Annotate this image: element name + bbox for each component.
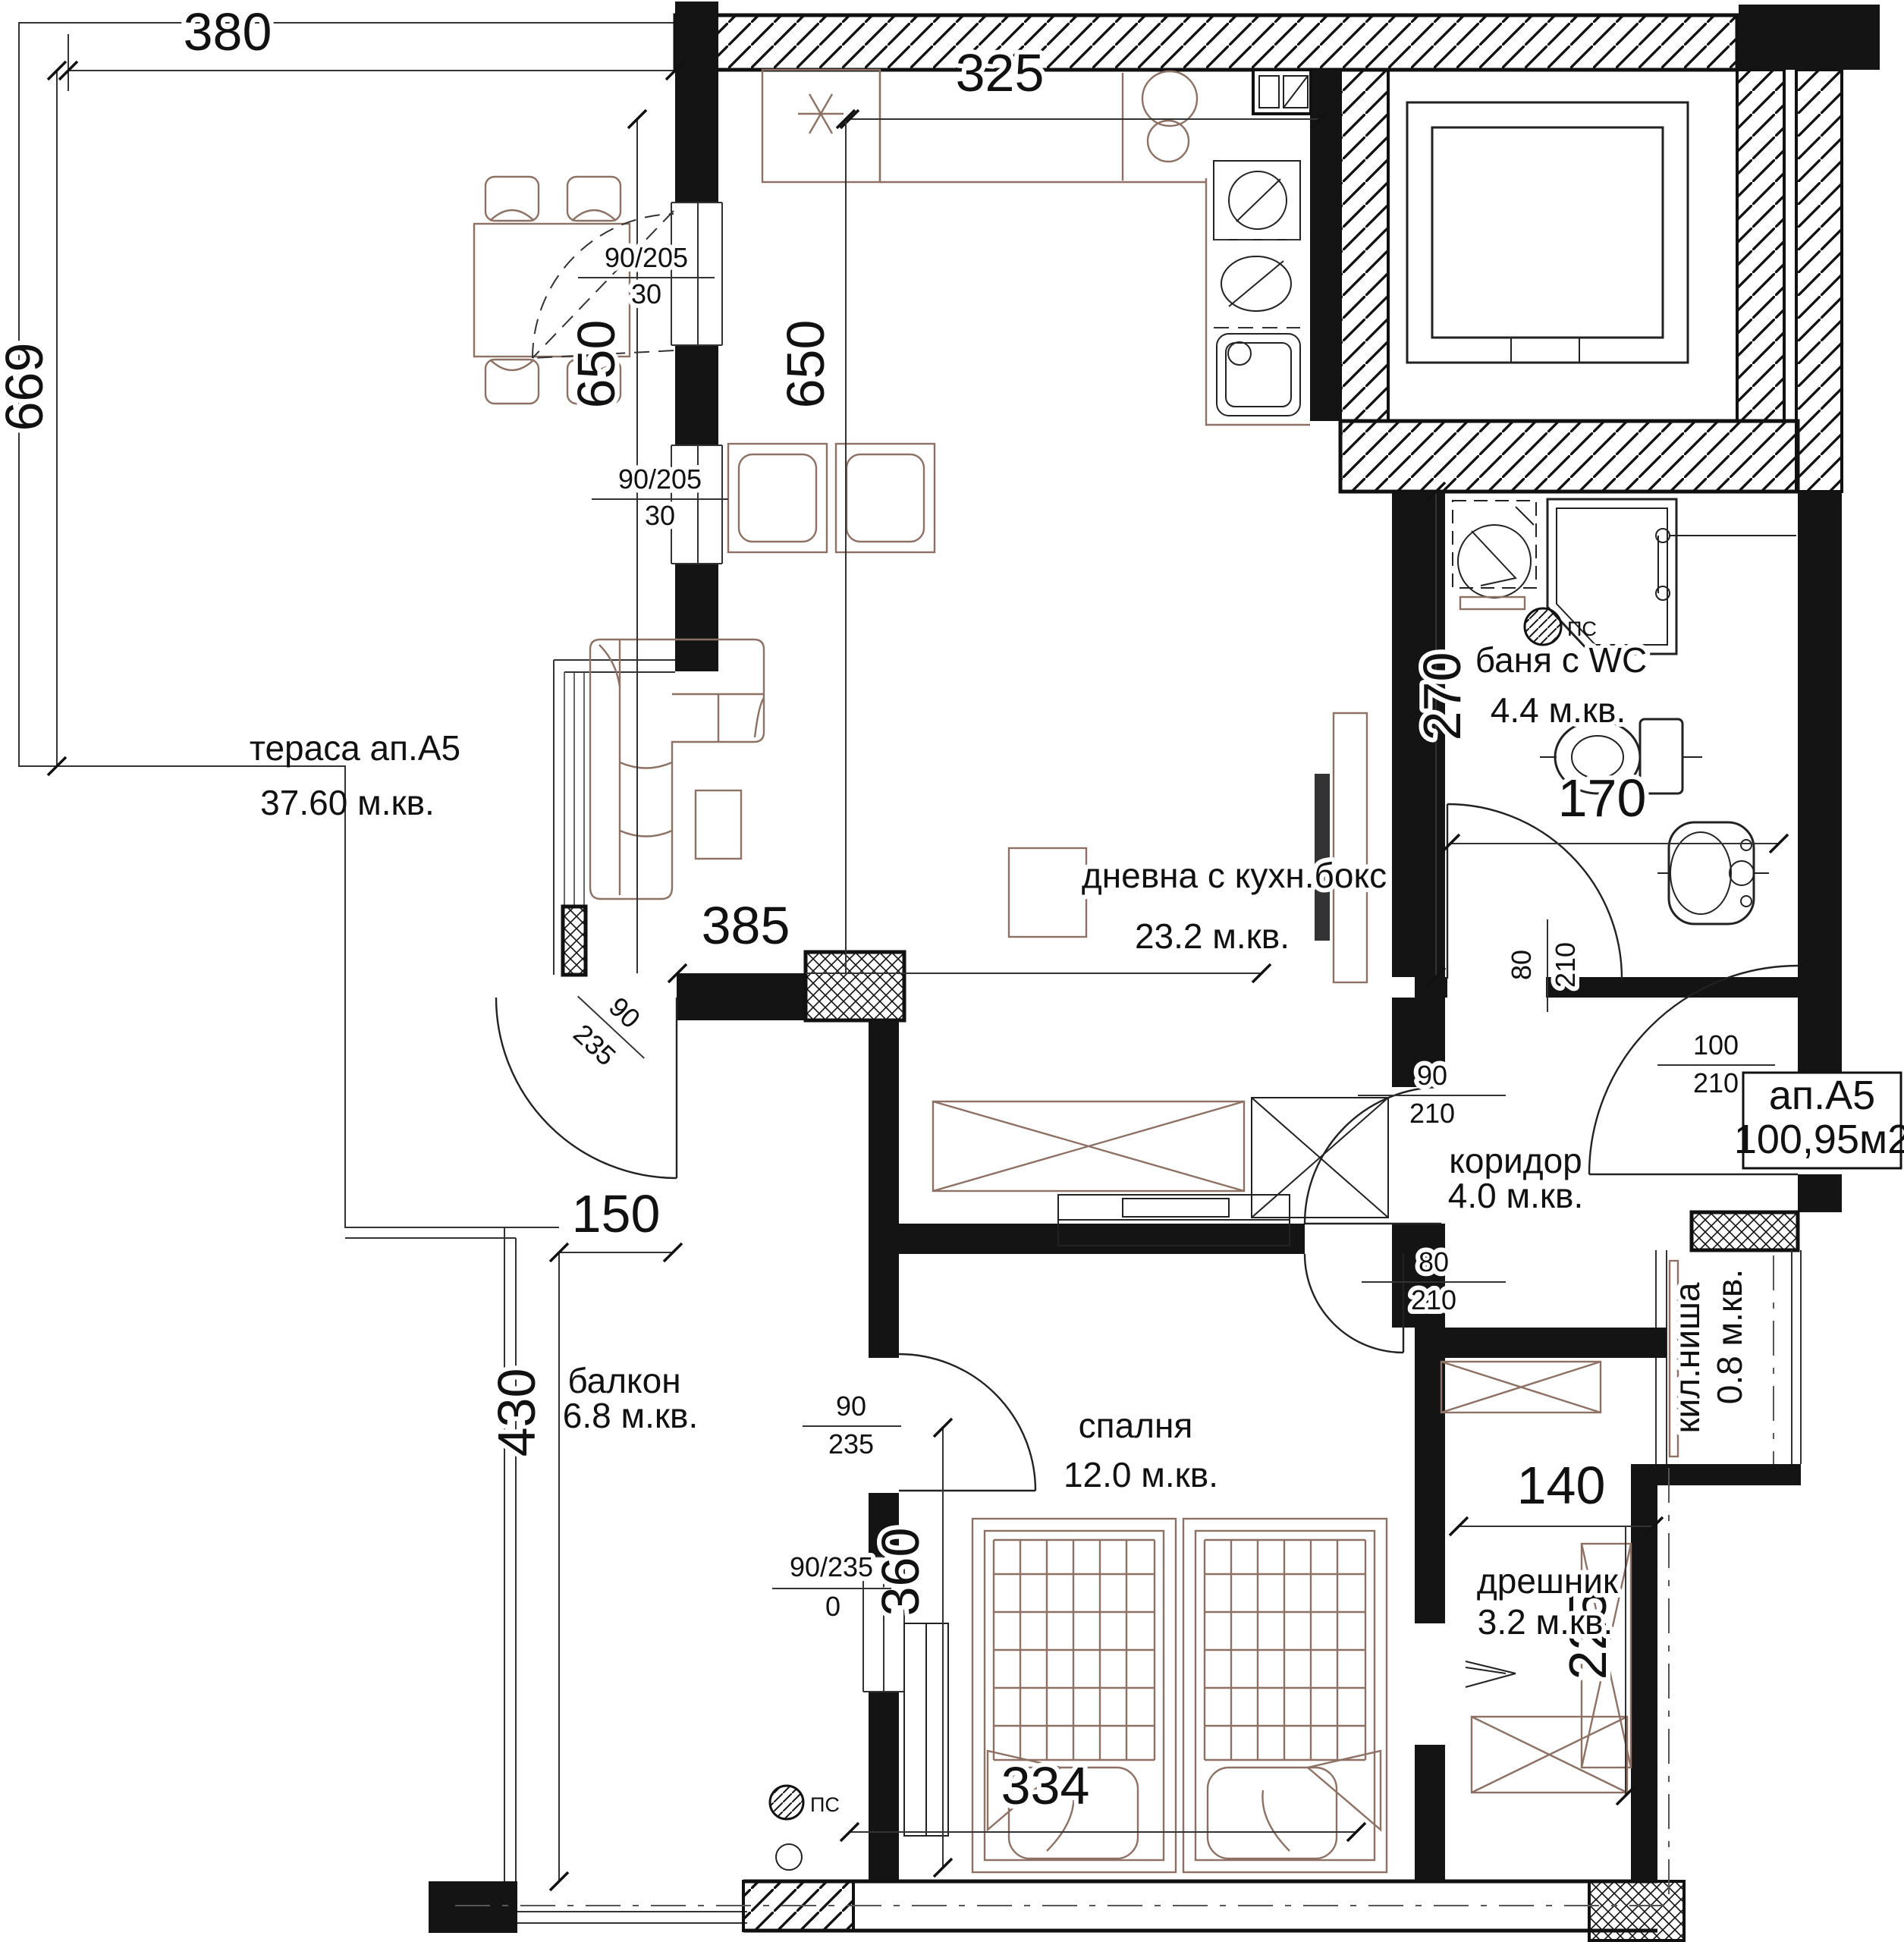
washing-machine-icon (1453, 501, 1536, 609)
room-bath-area: 4.4 м.кв. (1491, 690, 1626, 730)
dim-170: 170 (1558, 768, 1647, 828)
dim-270: 270 (1412, 652, 1472, 741)
room-bedroom-name: спалня (1079, 1406, 1193, 1445)
floor-drain-icon: ПС (1525, 608, 1597, 645)
apartment-badge: ап.А5 100,95м2 (1734, 1073, 1904, 1168)
room-bedroom-area: 12.0 м.кв. (1064, 1455, 1218, 1494)
masonry-column-2 (806, 952, 904, 1020)
room-closet-area: 3.2 м.кв. (1478, 1602, 1613, 1642)
kitchen-sink-icon (1217, 334, 1300, 416)
badge-area: 100,95м2 (1734, 1117, 1904, 1162)
dim-650-b: 650 (776, 320, 835, 409)
room-niche-name: кил.ниша (1667, 1282, 1707, 1433)
elevator-icon (1407, 102, 1688, 363)
badge-unit: ап.А5 (1769, 1073, 1875, 1118)
dim-380: 380 (184, 2, 272, 61)
door-swings (496, 804, 1798, 1491)
coffee-table (696, 790, 741, 859)
svg-text:90: 90 (603, 991, 646, 1034)
window-left-1 (671, 203, 722, 345)
label-door-living-balcony: 90 235 (551, 970, 668, 1087)
dim-650-a: 650 (567, 320, 626, 409)
room-niche-area: 0.8 м.кв. (1710, 1269, 1749, 1404)
room-corridor-area: 4.0 м.кв. (1448, 1176, 1583, 1215)
corner-wall-block (1739, 5, 1880, 70)
balcony-symbols: ПС (770, 1786, 840, 1870)
bed (1183, 1519, 1387, 1872)
svg-text:30: 30 (645, 500, 675, 531)
svg-text:30: 30 (631, 278, 661, 310)
door-bedroom-balcony (899, 1354, 1035, 1491)
floor-plan-canvas: ПС (0, 0, 1904, 1942)
svg-text:235: 235 (828, 1428, 874, 1460)
pouf (1009, 848, 1086, 937)
room-balcony-area: 6.8 м.кв. (563, 1396, 698, 1435)
dishwasher-icon (1214, 240, 1300, 328)
dim-150: 150 (572, 1184, 661, 1243)
room-terrace-name: тераса ап.А5 (250, 728, 460, 768)
armchairs (728, 444, 935, 552)
dim-360: 360 (871, 1528, 930, 1617)
electrical-box-icon (1253, 70, 1311, 114)
floor-plan-page: ПС (0, 0, 1904, 1942)
svg-text:0: 0 (825, 1591, 840, 1622)
label-bedroom-window: 90/235 (790, 1551, 873, 1582)
bedroom-furniture (904, 1519, 1387, 1872)
masonry-column-3 (1692, 1212, 1798, 1250)
svg-text:80: 80 (1506, 950, 1537, 980)
label-door-living-corridor: 90 (1417, 1060, 1447, 1091)
dim-325: 325 (956, 43, 1045, 102)
kitchen-tall-cabinet (762, 70, 880, 182)
bath-sink-icon (1657, 822, 1769, 924)
label-door-entry: 100 (1693, 1029, 1739, 1061)
room-living-area: 23.2 м.кв. (1135, 916, 1290, 956)
dim-140: 140 (1517, 1456, 1606, 1515)
svg-text:ПС: ПС (1567, 617, 1597, 640)
floor-drain-icon (770, 1786, 803, 1819)
room-living-name: дневна с кухн.бокс (1082, 856, 1387, 895)
label-window-1: 90/205 (605, 242, 688, 273)
label-door-bedroom: 80 (1419, 1246, 1449, 1277)
svg-text:235: 235 (567, 1018, 622, 1072)
bed (972, 1519, 1176, 1872)
room-bath-name: баня с WC (1475, 640, 1647, 680)
room-terrace-area: 37.60 м.кв. (260, 783, 435, 822)
room-closet-name: дрешник (1477, 1561, 1619, 1601)
door-bedroom (1305, 1254, 1403, 1353)
svg-text:210: 210 (1411, 1284, 1456, 1315)
label-window-2: 90/205 (618, 464, 702, 495)
radiator (904, 1623, 948, 1836)
dim-334: 334 (1001, 1756, 1090, 1815)
dim-430: 430 (487, 1369, 546, 1457)
corridor-furniture (1441, 1261, 1678, 1456)
tv-unit (1315, 713, 1367, 982)
svg-text:ПС: ПС (810, 1793, 840, 1816)
hanger-icon (1466, 1661, 1516, 1687)
sofa (590, 639, 764, 899)
svg-text:210: 210 (1409, 1098, 1455, 1129)
cooktop-burner-icon (1142, 71, 1197, 126)
svg-text:210: 210 (1693, 1067, 1739, 1098)
masonry-column-1 (563, 907, 586, 975)
washing-machine-icon (1214, 161, 1300, 240)
label-door-bath: 80 210 (1506, 919, 1581, 1012)
room-balcony-name: балкон (567, 1361, 680, 1400)
label-door-balcony-bedroom: 90 (836, 1391, 866, 1422)
svg-text:210: 210 (1550, 942, 1581, 988)
room-corridor-name: коридор (1449, 1141, 1582, 1180)
dim-669: 669 (0, 343, 54, 432)
dim-385: 385 (702, 896, 790, 955)
